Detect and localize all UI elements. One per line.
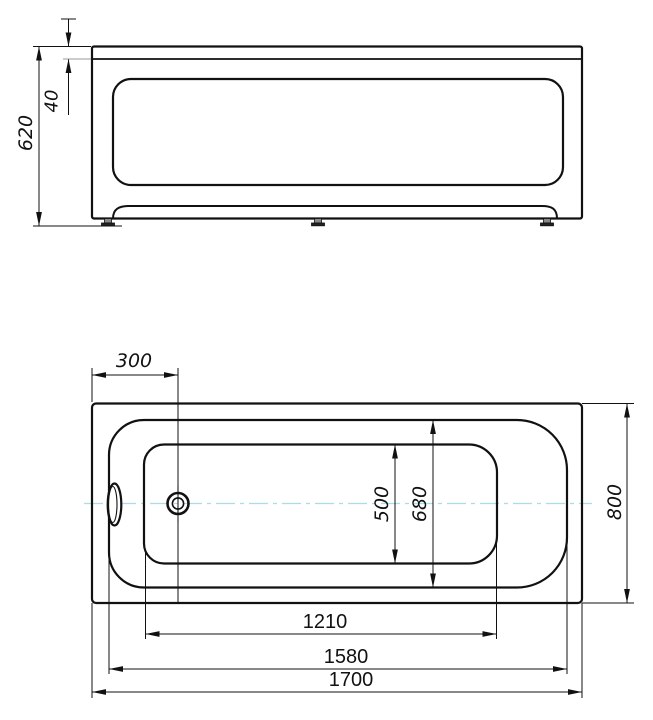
dim-1210-arrow-left bbox=[146, 631, 160, 637]
dim-1210-arrow-right bbox=[483, 631, 497, 637]
dim-300-arrow-right bbox=[164, 372, 178, 378]
dim-500-label: 500 bbox=[371, 486, 393, 522]
front-foot-center-base bbox=[312, 223, 325, 226]
dim-300-arrow-left bbox=[92, 372, 106, 378]
front-outer-body bbox=[92, 47, 582, 219]
dim-1580-label: 1580 bbox=[324, 646, 369, 668]
dim-1700-arrow-right bbox=[568, 689, 582, 695]
dim-620-arrow-top bbox=[36, 47, 42, 61]
dim-620-label: 620 bbox=[15, 115, 37, 151]
front-foot-right-base bbox=[541, 223, 554, 226]
dim-1700-label: 1700 bbox=[329, 669, 374, 691]
dim-40-label: 40 bbox=[42, 90, 63, 113]
dim-800-label: 800 bbox=[604, 484, 626, 520]
dim-1700-arrow-left bbox=[92, 689, 106, 695]
drawing-svg: 62040300800680500121015801700 bbox=[0, 0, 653, 720]
dim-300-label: 300 bbox=[116, 350, 152, 372]
front-foot-left-base bbox=[102, 223, 115, 226]
dim-1580-arrow-right bbox=[553, 666, 567, 672]
front-foot-center-stem bbox=[315, 219, 322, 224]
front-foot-left-stem bbox=[105, 219, 112, 224]
dim-1580-arrow-left bbox=[109, 666, 123, 672]
front-apron-recess bbox=[113, 79, 563, 185]
dim-1210-label: 1210 bbox=[303, 611, 348, 633]
dim-680-label: 680 bbox=[409, 486, 431, 522]
front-foot-right-stem bbox=[544, 219, 551, 224]
technical-drawing-canvas: 62040300800680500121015801700 bbox=[0, 0, 653, 720]
dim-680-arrow-bottom bbox=[430, 574, 436, 588]
dim-40-arrow-lower bbox=[66, 59, 72, 73]
dim-500-arrow-top bbox=[392, 445, 398, 459]
dim-800-arrow-bottom bbox=[624, 589, 630, 603]
dim-40-arrow-upper bbox=[66, 33, 72, 47]
dim-680-arrow-top bbox=[430, 420, 436, 434]
overflow-outer-oval bbox=[108, 484, 122, 526]
dim-800-arrow-top bbox=[624, 404, 630, 418]
dim-620-arrow-bottom bbox=[36, 212, 42, 226]
front-bottom-lip bbox=[113, 206, 557, 219]
dim-500-arrow-bottom bbox=[392, 550, 398, 564]
